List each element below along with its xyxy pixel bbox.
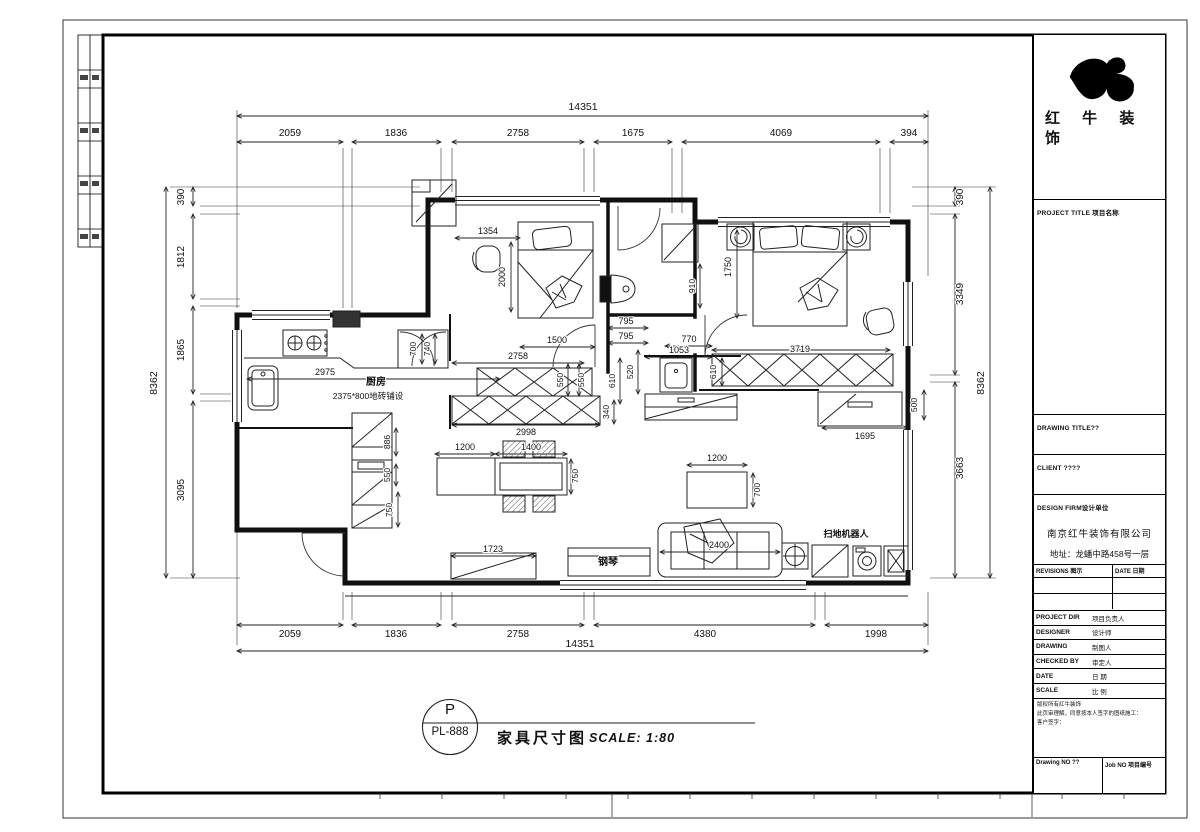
client-section: CLIENT ???? [1034, 455, 1165, 495]
dim-label: 2758 [508, 351, 528, 361]
staff-section: PROJECT DIR项目负责人 DESIGNER设计师 DRAWING制图人 … [1034, 611, 1165, 699]
company-logo-block: 红 牛 装 饰 [1034, 35, 1165, 200]
dim-label: 750 [570, 469, 580, 483]
console-cabinet [451, 553, 536, 579]
dim-label: 1200 [455, 442, 475, 452]
room-label: 钢琴 [598, 555, 618, 568]
dim-label: 390 [955, 188, 966, 205]
room-label: 厨房 [366, 375, 386, 388]
copyright-note-line2: 此页审理解，同意按本人签字的图纸施工： [1037, 710, 1162, 719]
dim-label: 394 [901, 128, 918, 139]
designer-label: DESIGNER [1034, 629, 1092, 636]
toilet-icon [600, 275, 635, 303]
company-name-line2: 饰 [1037, 129, 1162, 149]
single-bed-icon [518, 222, 593, 318]
drawing-no-label: Drawing NO ?? [1034, 758, 1103, 793]
dim-label: 4380 [694, 629, 717, 640]
wardrobe-master [712, 354, 893, 386]
scale-label: SCALE [1034, 687, 1092, 694]
dim-label: 3663 [955, 456, 966, 479]
dim-label: 340 [601, 405, 611, 419]
dim-label: 2975 [315, 367, 335, 377]
date-label: DATE [1034, 673, 1092, 680]
counter-edge [244, 330, 398, 368]
dim-label: 550 [576, 373, 586, 387]
company-name-line1: 红 牛 装 [1037, 109, 1162, 129]
floor-plan-sheet: { "title_block": { "company_line1": "红 牛… [0, 0, 1200, 832]
drawing-label: DRAWING [1034, 643, 1092, 650]
revisions-section: REVISIONS 图示 DATE 日期 [1034, 565, 1165, 611]
dim-label: 770 [681, 334, 696, 344]
project-title-section: PROJECT TITLE 项目名称 [1034, 200, 1165, 415]
dim-label: 1998 [865, 629, 888, 640]
dim-label: 3719 [790, 344, 810, 354]
firm-address: 地址：龙蟠中路458号一层 [1037, 548, 1162, 560]
dim-label: 795 [618, 331, 633, 341]
dim-label: 550 [382, 468, 392, 482]
double-bed-icon [753, 222, 847, 326]
sheet-code-letter: P [428, 701, 472, 718]
dim-label: 740 [422, 342, 432, 356]
dim-label: 1500 [547, 335, 567, 345]
dim-label: 1750 [723, 257, 733, 277]
room-label: 2375*800地砖铺设 [333, 391, 404, 401]
dim-label: 1865 [176, 338, 187, 361]
drawing-title-label: DRAWING TITLE?? [1037, 425, 1099, 432]
stove-icon [283, 330, 327, 356]
dim-label: 700 [408, 342, 418, 356]
dim-label: 3095 [176, 478, 187, 501]
master-door [705, 315, 747, 357]
checked-by-label: CHECKED BY [1034, 658, 1092, 665]
client-signature-label: 客户签字： [1037, 719, 1162, 728]
robot-vacuum-dock [812, 545, 848, 577]
dim-label: 2059 [279, 629, 302, 640]
firm-name: 南京红牛装饰有限公司 [1037, 526, 1162, 540]
dim-label: 1053 [669, 345, 689, 355]
appliance-icon [884, 546, 908, 576]
dim-label: 550 [555, 373, 565, 387]
dim-label: 8362 [975, 371, 987, 395]
dim-label: 4069 [770, 128, 793, 139]
floor-plan-canvas: 1435120591836275816754069394205918362758… [0, 0, 1200, 832]
dim-label: 750 [384, 503, 394, 517]
master-chair-icon [863, 307, 895, 337]
dim-label: 1836 [385, 128, 408, 139]
balcony-door [302, 533, 345, 576]
dim-label: 2400 [709, 540, 729, 550]
basin-cabinet [645, 394, 737, 420]
dim-label: 700 [752, 483, 762, 497]
dim-label: 1675 [622, 128, 645, 139]
dim-label: 14351 [565, 638, 594, 650]
design-firm-section: DESIGN FIRM设计单位 南京红牛装饰有限公司 地址：龙蟠中路458号一层 [1034, 495, 1165, 565]
redbull-logo-icon [1058, 47, 1142, 109]
chair-icon [473, 246, 500, 272]
bath-door [618, 206, 660, 250]
bedroom2-door [553, 325, 595, 367]
dim-label: 1200 [707, 453, 727, 463]
dim-label: 610 [708, 365, 718, 379]
kitchen-flue [333, 311, 360, 327]
dim-label: 910 [687, 279, 697, 293]
washer-icon [853, 546, 881, 576]
side-table-icon [782, 543, 808, 569]
dim-label: 2000 [497, 267, 507, 287]
sheet-code-number: PL-888 [420, 726, 480, 738]
dim-label: 2998 [516, 427, 536, 437]
dim-label: 795 [618, 316, 633, 326]
drawing-title-text: 家具尺寸图 [497, 727, 587, 748]
design-firm-label: DESIGN FIRM设计单位 [1037, 505, 1109, 512]
dim-label: 390 [176, 188, 187, 205]
room-label: 扫地机器人 [823, 528, 869, 539]
dim-label: 1400 [521, 442, 541, 452]
title-block: 红 牛 装 饰 PROJECT TITLE 项目名称 DRAWING TITLE… [1032, 35, 1165, 793]
desk-icon [818, 392, 902, 426]
dim-label: 886 [382, 435, 392, 449]
dim-label: 8362 [148, 371, 160, 395]
dim-label: 3349 [955, 282, 966, 305]
dim-label: 1695 [855, 431, 875, 441]
dim-label: 520 [625, 365, 635, 379]
dim-label: 1723 [483, 544, 503, 554]
dim-label: 1354 [478, 226, 498, 236]
dim-label: 1812 [176, 245, 187, 268]
dim-label: 1836 [385, 629, 408, 640]
washbasin-icon [660, 358, 692, 392]
job-no-label: Job NO 项目编号 [1103, 758, 1165, 793]
dim-label: 2059 [279, 128, 302, 139]
coffee-table-icon [687, 472, 747, 508]
dim-label: 500 [909, 398, 919, 412]
copyright-note-section: 版权所有红牛装饰 此页审理解，同意按本人签字的图纸施工： 客户签字： [1034, 699, 1165, 758]
sink-icon [248, 366, 278, 410]
copyright-note-line1: 版权所有红牛装饰 [1037, 701, 1162, 710]
revision-strip [78, 35, 102, 247]
drawing-no-section: Drawing NO ?? Job NO 项目编号 [1034, 758, 1165, 793]
project-title-label: PROJECT TITLE 项目名称 [1037, 210, 1119, 217]
date-header: DATE 日期 [1113, 565, 1165, 577]
grid-ticks [380, 793, 1124, 817]
entry-shaft [662, 224, 698, 262]
dim-label: 2758 [507, 629, 530, 640]
project-dir-label: PROJECT DIR [1034, 614, 1092, 621]
drawing-title-section: DRAWING TITLE?? [1034, 415, 1165, 455]
drawing-scale-text: SCALE: 1:80 [589, 731, 675, 745]
dim-label: 2758 [507, 128, 530, 139]
client-label: CLIENT ???? [1037, 465, 1080, 472]
revisions-header: REVISIONS 图示 [1034, 565, 1113, 577]
dim-label: 610 [607, 374, 617, 388]
dim-label: 14351 [568, 101, 597, 113]
